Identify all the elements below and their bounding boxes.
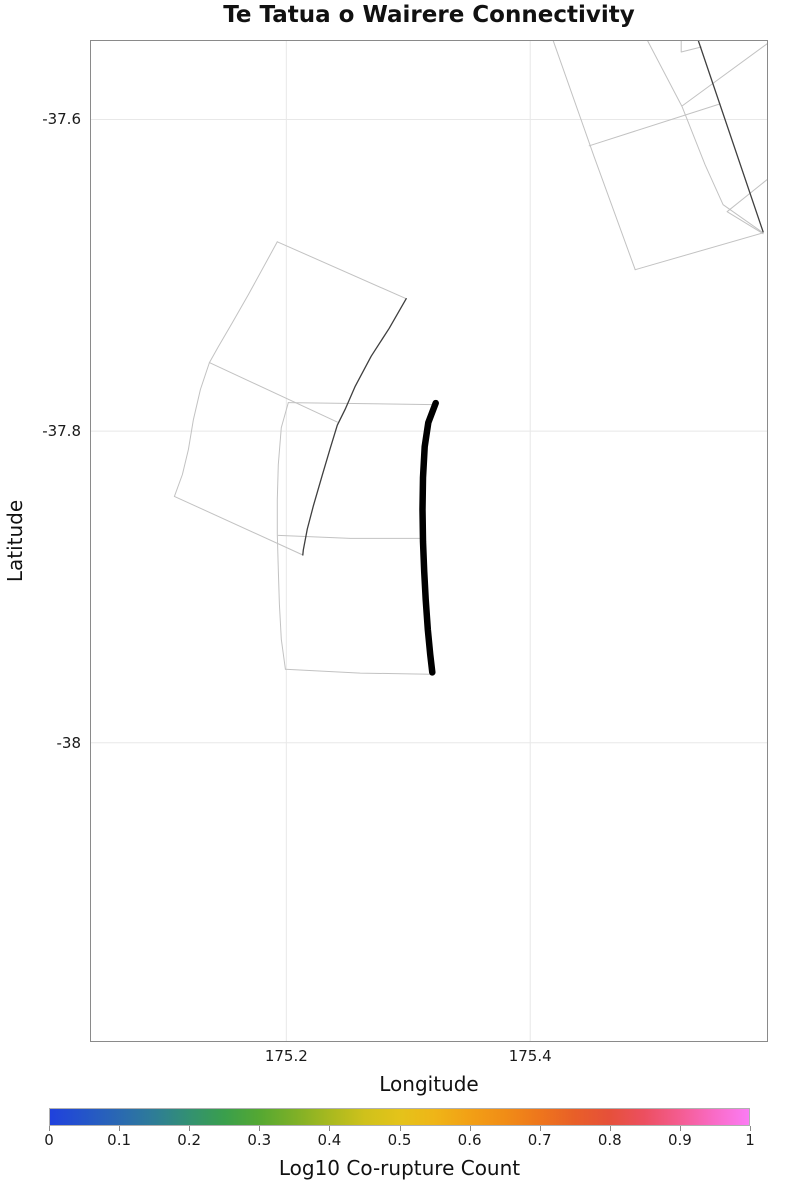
colorbar-tick-label: 0.2 [167, 1131, 211, 1149]
colorbar-tick-label: 0.1 [97, 1131, 141, 1149]
co-rupture-trace-west [303, 299, 406, 555]
colorbar-tick-label: 0.9 [658, 1131, 702, 1149]
northeast-fault-upper-cross-edge [682, 43, 768, 106]
northeast-fault-south-edge [635, 233, 763, 270]
co-rupture-trace-northeast [698, 40, 763, 232]
y-axis-label: Latitude [3, 500, 27, 582]
central-section-south-edge [285, 669, 430, 674]
northeast-fault-lower-cross-edge [589, 104, 720, 146]
x-axis-label: Longitude [90, 1072, 768, 1096]
west-fan-west-edge [174, 242, 277, 497]
colorbar-tick-label: 0.7 [518, 1131, 562, 1149]
x-tick-label: 175.2 [251, 1047, 321, 1065]
colorbar-tick-label: 0 [27, 1131, 71, 1149]
map-plot [0, 0, 800, 1188]
central-section-divider [278, 535, 423, 538]
colorbar-tick-label: 0.4 [307, 1131, 351, 1149]
colorbar-tick-label: 0.5 [378, 1131, 422, 1149]
connectivity-map-figure: Te Tatua o Wairere Connectivity -37.6-37… [0, 0, 800, 1188]
colorbar-label: Log10 Co-rupture Count [49, 1156, 750, 1180]
colorbar-tick-label: 1 [728, 1131, 772, 1149]
te-tatua-o-wairere-fault-trace [423, 403, 436, 672]
plot-area [90, 40, 768, 1042]
x-tick-label: 175.4 [495, 1047, 565, 1065]
plot-border [91, 41, 768, 1042]
central-section-top-edge [288, 403, 433, 405]
colorbar-tick-label: 0.6 [448, 1131, 492, 1149]
northeast-fault-west-edge [553, 41, 635, 270]
west-fan-divider [209, 363, 337, 423]
west-fan-south-edge [174, 496, 302, 555]
colorbar-gradient [49, 1108, 750, 1126]
y-tick-label: -37.8 [42, 422, 81, 440]
west-fan-top-edge [277, 242, 406, 299]
colorbar-tick-label: 0.8 [588, 1131, 632, 1149]
colorbar-tick-label: 0.3 [237, 1131, 281, 1149]
y-tick-label: -37.6 [42, 110, 81, 128]
northeast-fault-inner-edge [647, 40, 763, 233]
y-tick-label: -38 [57, 734, 82, 752]
